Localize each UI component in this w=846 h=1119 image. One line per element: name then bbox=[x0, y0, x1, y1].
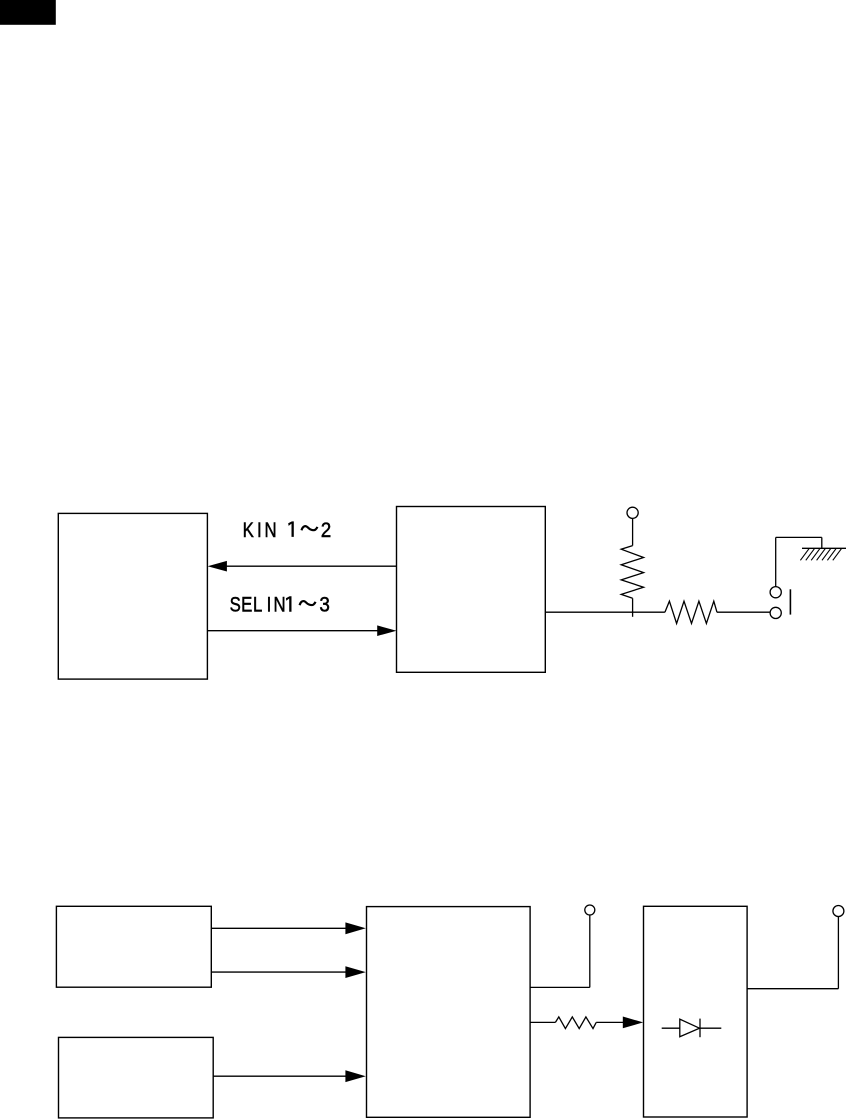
svg-text:2: 2 bbox=[321, 519, 332, 542]
svg-text:3: 3 bbox=[319, 594, 330, 617]
svg-text:KIN: KIN bbox=[243, 519, 277, 542]
svg-text:SELIN: SELIN bbox=[230, 594, 286, 617]
